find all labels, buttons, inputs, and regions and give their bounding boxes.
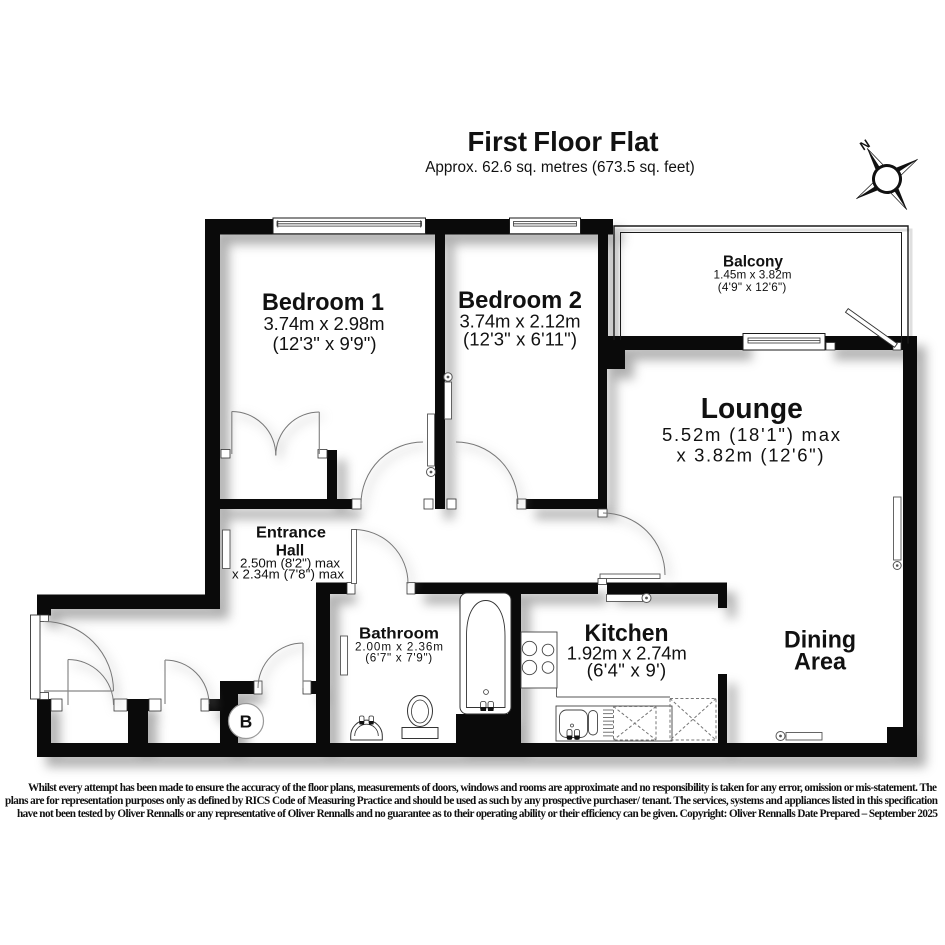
svg-text:plans are for representation p: plans are for representation purposes on… xyxy=(5,795,939,807)
svg-text:Area: Area xyxy=(794,649,847,676)
svg-text:x 2.34m (7'8") max: x 2.34m (7'8") max xyxy=(232,567,344,582)
svg-text:3.74m x 2.98m: 3.74m x 2.98m xyxy=(264,313,385,334)
svg-text:have not been tested by Oliver: have not been tested by Oliver Rennalls … xyxy=(17,808,938,820)
svg-text:(6'7" x 7'9"): (6'7" x 7'9") xyxy=(365,652,432,665)
svg-text:Bedroom 1: Bedroom 1 xyxy=(262,289,384,316)
svg-text:(12'3" x 9'9"): (12'3" x 9'9") xyxy=(273,333,377,354)
svg-text:Lounge: Lounge xyxy=(701,393,803,425)
svg-text:First: First xyxy=(468,126,528,157)
svg-text:Whilst every attempt has been: Whilst every attempt has been made to en… xyxy=(28,782,937,794)
svg-text:Approx. 62.6 sq. metres (673.5: Approx. 62.6 sq. metres (673.5 sq. feet) xyxy=(425,159,695,176)
svg-text:(12'3" x 6'11"): (12'3" x 6'11") xyxy=(463,329,577,350)
svg-text:Entrance: Entrance xyxy=(256,525,326,542)
svg-text:B: B xyxy=(240,712,253,732)
svg-text:(6'4" x 9'): (6'4" x 9') xyxy=(587,660,667,681)
svg-text:(4'9" x 12'6"): (4'9" x 12'6") xyxy=(718,281,787,294)
svg-text:Floor Flat: Floor Flat xyxy=(533,126,658,157)
svg-text:5.52m (18'1") max: 5.52m (18'1") max xyxy=(662,424,841,445)
svg-text:x 3.82m (12'6"): x 3.82m (12'6") xyxy=(677,445,824,466)
svg-text:1.45m x 3.82m: 1.45m x 3.82m xyxy=(714,269,792,282)
